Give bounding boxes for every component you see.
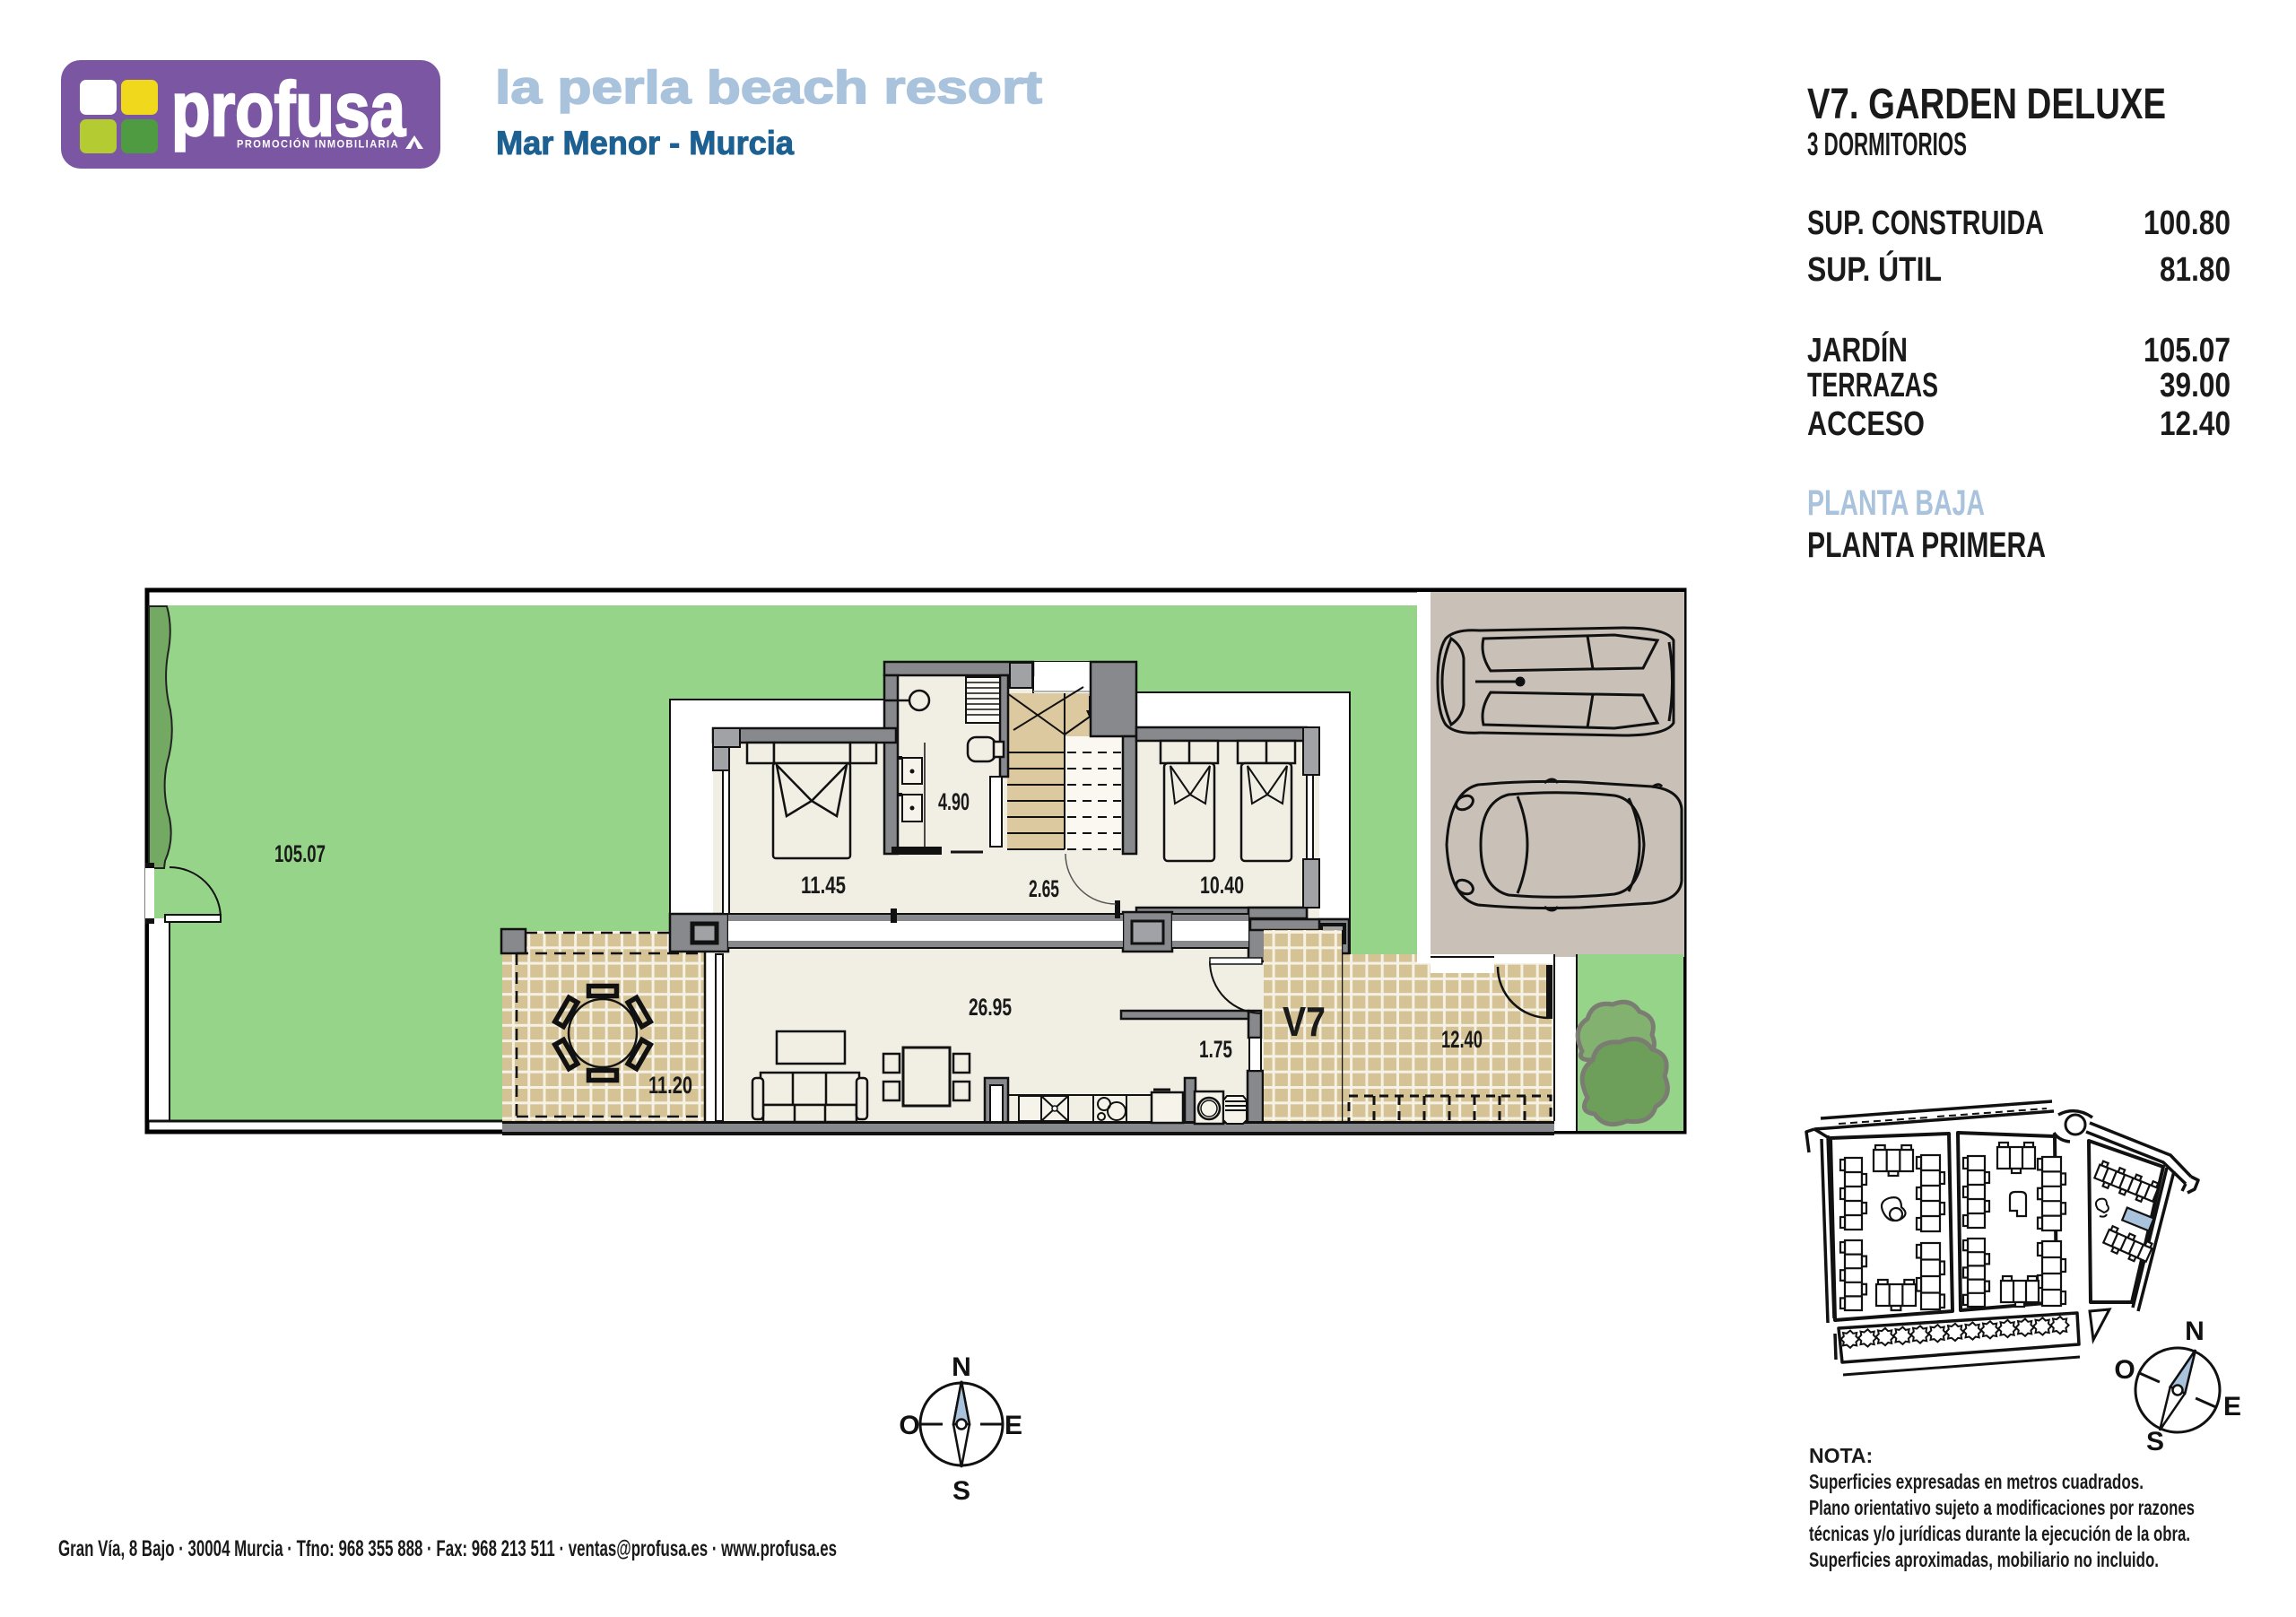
svg-text:Superficies expresadas en metr: Superficies expresadas en metros cuadrad… [1809, 1470, 2144, 1493]
svg-text:2.65: 2.65 [1029, 875, 1059, 902]
svg-text:TERRAZAS: TERRAZAS [1807, 367, 1938, 404]
svg-text:la perla beach resort: la perla beach resort [495, 62, 1042, 114]
svg-text:100.80: 100.80 [2144, 204, 2231, 242]
svg-text:V7. GARDEN DELUXE: V7. GARDEN DELUXE [1807, 81, 2166, 128]
svg-text:SUP. ÚTIL: SUP. ÚTIL [1807, 249, 1942, 289]
svg-text:1.75: 1.75 [1199, 1036, 1232, 1063]
svg-text:SUP. CONSTRUIDA: SUP. CONSTRUIDA [1807, 204, 2044, 242]
svg-text:105.07: 105.07 [2144, 332, 2231, 369]
svg-text:V7: V7 [1283, 998, 1326, 1045]
svg-text:10.40: 10.40 [1200, 872, 1244, 899]
svg-text:S: S [952, 1476, 970, 1506]
svg-text:26.95: 26.95 [969, 994, 1012, 1021]
svg-text:N: N [2185, 1317, 2205, 1346]
svg-text:12.40: 12.40 [2160, 405, 2231, 443]
svg-text:11.45: 11.45 [801, 872, 846, 899]
svg-text:PLANTA PRIMERA: PLANTA PRIMERA [1807, 526, 2046, 565]
svg-text:81.80: 81.80 [2160, 251, 2231, 289]
svg-text:3 DORMITORIOS: 3 DORMITORIOS [1807, 126, 1967, 162]
svg-text:técnicas y/o jurídicas durante: técnicas y/o jurídicas durante la ejecuc… [1809, 1522, 2190, 1545]
svg-text:S: S [2146, 1427, 2164, 1456]
svg-text:O: O [2114, 1355, 2135, 1385]
svg-text:N: N [952, 1352, 971, 1382]
svg-text:O: O [899, 1411, 919, 1440]
svg-text:Plano orientativo sujeto a mod: Plano orientativo sujeto a modificacione… [1809, 1496, 2195, 1519]
svg-text:4.90: 4.90 [938, 788, 970, 815]
svg-text:Superficies aproximadas, mobil: Superficies aproximadas, mobiliario no i… [1809, 1548, 2159, 1571]
svg-text:39.00: 39.00 [2160, 367, 2231, 404]
svg-text:NOTA:: NOTA: [1809, 1444, 1873, 1467]
svg-text:JARDÍN: JARDÍN [1807, 330, 1908, 369]
svg-text:105.07: 105.07 [274, 840, 326, 867]
svg-text:11.20: 11.20 [648, 1072, 692, 1099]
svg-text:E: E [2223, 1392, 2241, 1421]
svg-text:PROMOCIÓN INMOBILIARIA: PROMOCIÓN INMOBILIARIA [237, 139, 399, 151]
svg-text:Gran Vía, 8 Bajo · 30004 Murc: Gran Vía, 8 Bajo · 30004 Murcia · Tfno: … [58, 1536, 837, 1561]
svg-text:ACCESO: ACCESO [1807, 405, 1925, 443]
svg-text:12.40: 12.40 [1441, 1026, 1483, 1053]
svg-text:E: E [1004, 1411, 1022, 1440]
svg-text:Mar Menor - Murcia: Mar Menor - Murcia [496, 125, 794, 161]
svg-text:PLANTA BAJA: PLANTA BAJA [1807, 483, 1985, 523]
